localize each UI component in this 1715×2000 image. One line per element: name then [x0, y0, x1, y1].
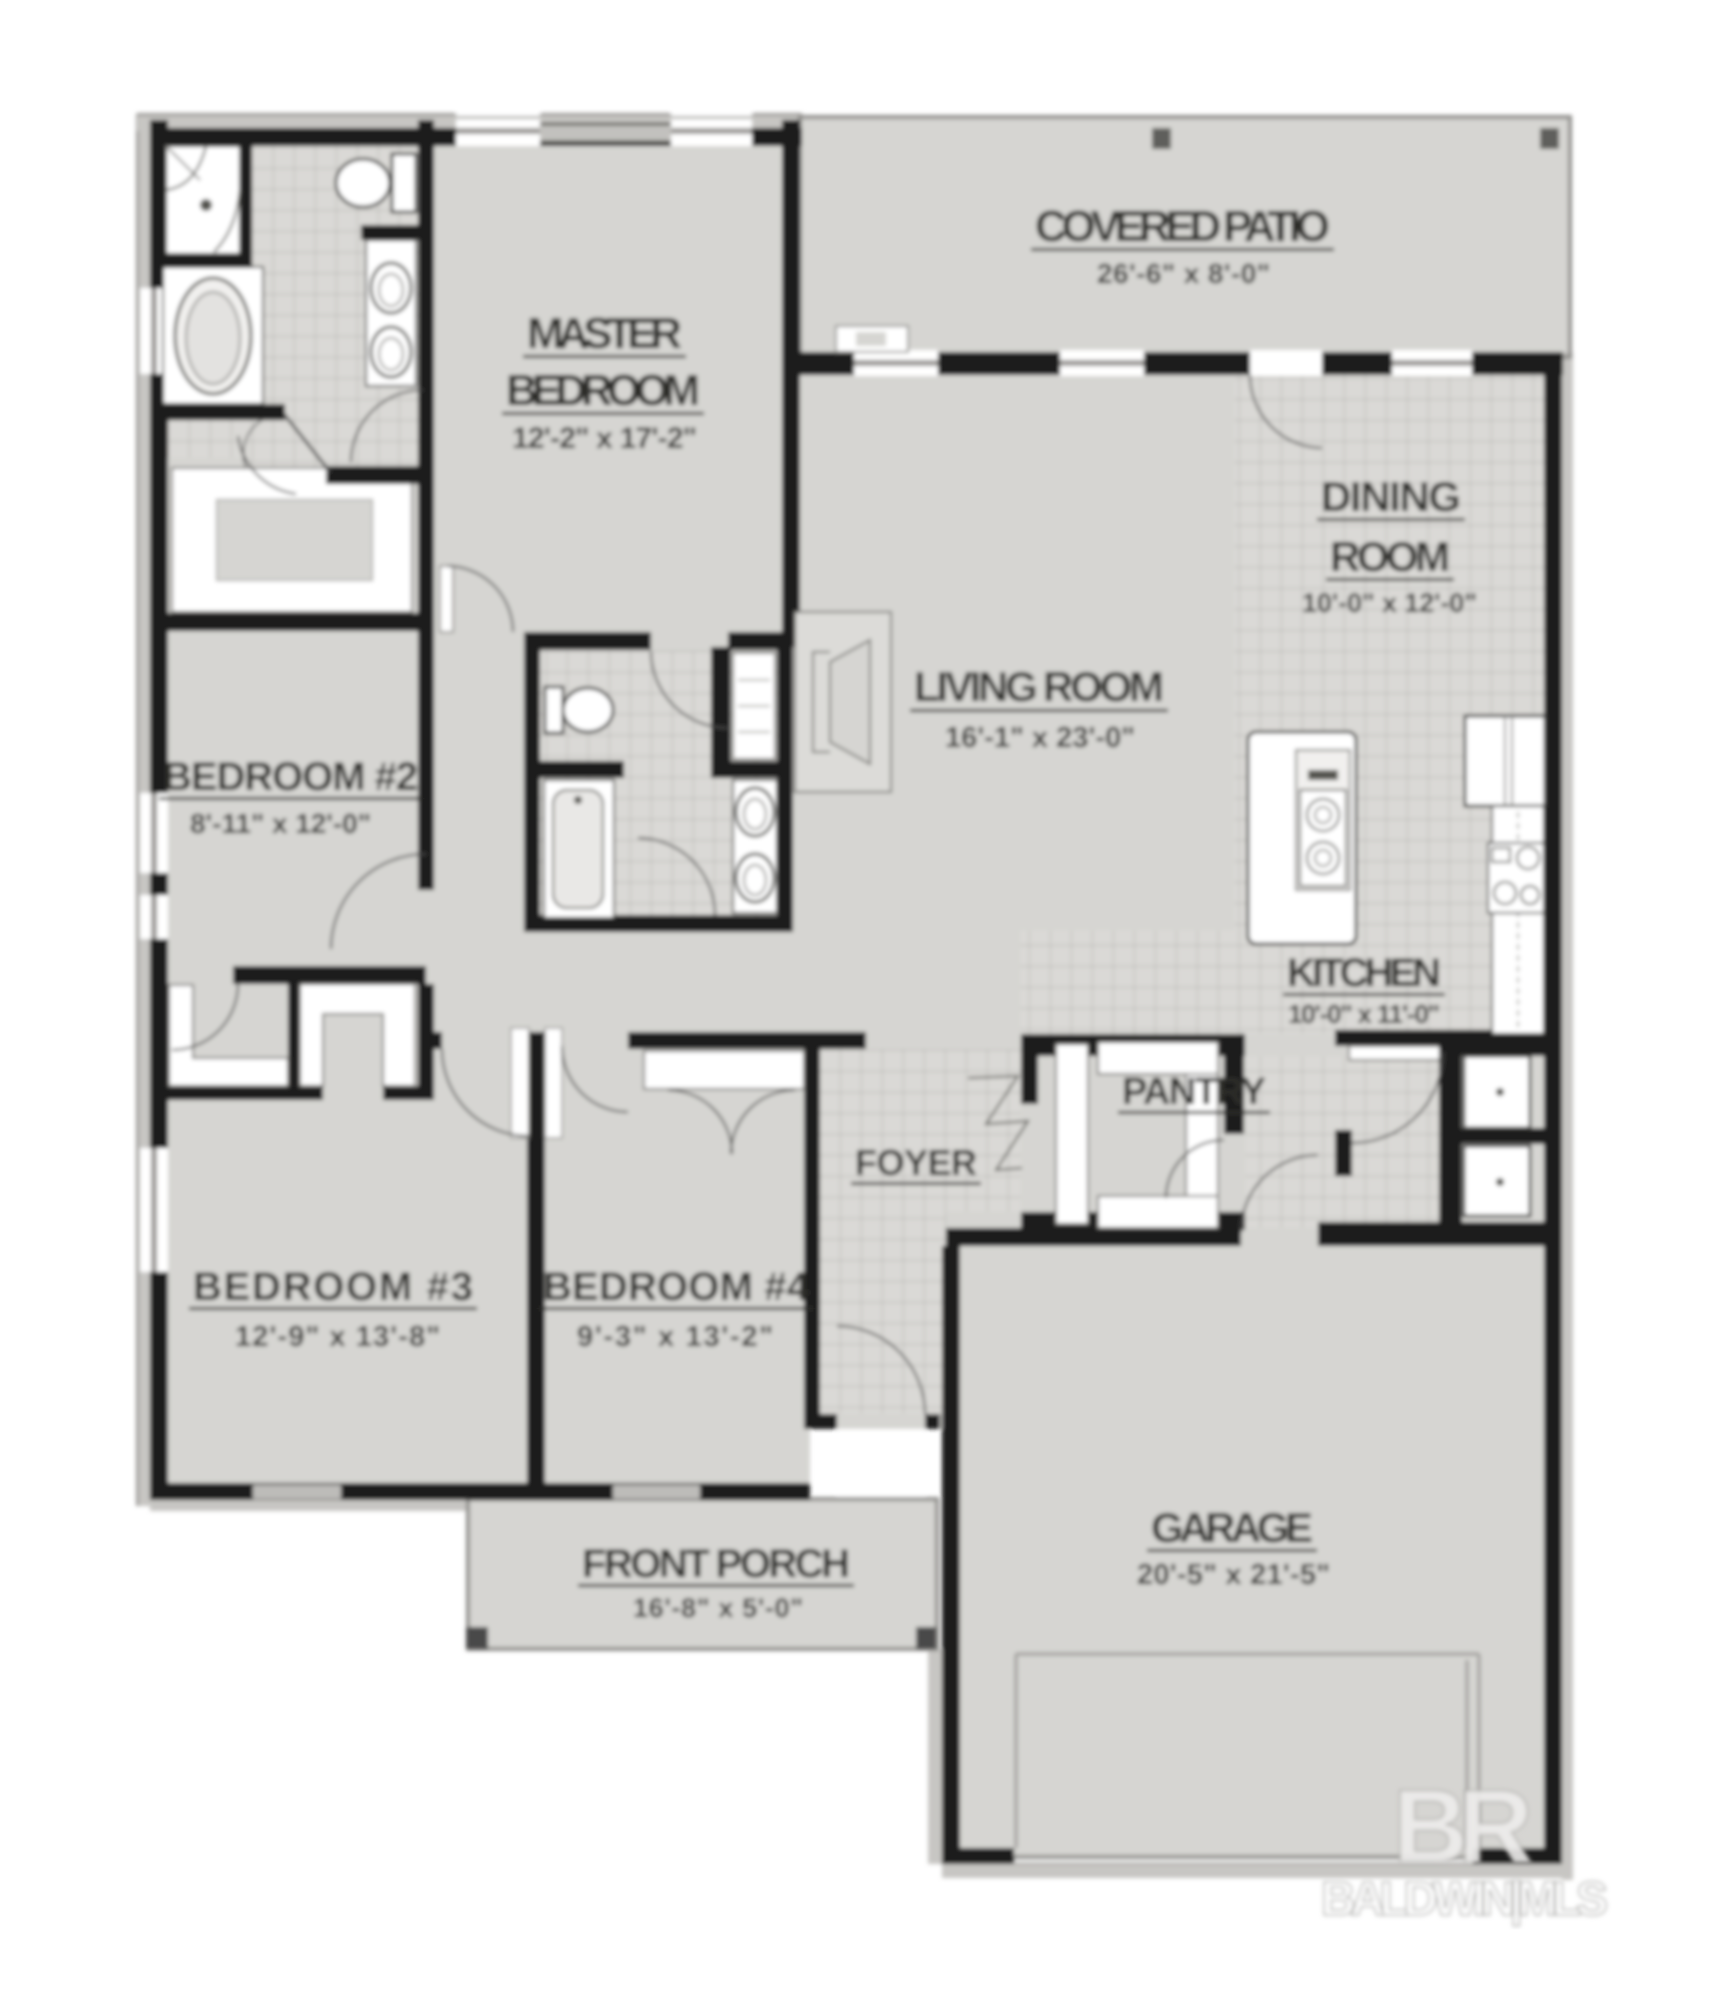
svg-text:26'-6" x 8'-0": 26'-6" x 8'-0"	[1097, 258, 1270, 289]
svg-text:8'-11" x 12'-0": 8'-11" x 12'-0"	[190, 808, 371, 839]
svg-text:BEDROOM #3: BEDROOM #3	[193, 1265, 473, 1309]
svg-text:GARAGE: GARAGE	[1151, 1504, 1313, 1551]
svg-text:FOYER: FOYER	[855, 1142, 977, 1183]
svg-text:12'-2" x 17'-2": 12'-2" x 17'-2"	[512, 422, 697, 455]
svg-text:10'-0" x 12'-0": 10'-0" x 12'-0"	[1302, 588, 1477, 618]
svg-text:MASTER: MASTER	[527, 309, 682, 358]
svg-text:PANTRY: PANTRY	[1122, 1071, 1266, 1113]
svg-text:BEDROOM #2: BEDROOM #2	[163, 755, 418, 799]
svg-text:10'-0" x 11'-0": 10'-0" x 11'-0"	[1288, 999, 1440, 1029]
svg-text:20'-5" x 21'-5": 20'-5" x 21'-5"	[1137, 1559, 1330, 1591]
svg-text:12'-9" x 13'-8": 12'-9" x 13'-8"	[235, 1321, 440, 1353]
svg-text:16'-8" x 5'-0": 16'-8" x 5'-0"	[633, 1593, 803, 1623]
svg-text:BEDROOM: BEDROOM	[506, 366, 700, 415]
svg-text:FRONT PORCH: FRONT PORCH	[582, 1542, 850, 1586]
svg-text:DINING: DINING	[1321, 473, 1461, 520]
svg-text:COVERED PATIO: COVERED PATIO	[1035, 202, 1330, 251]
svg-text:BEDROOM #4: BEDROOM #4	[543, 1265, 810, 1309]
svg-text:BR: BR	[1393, 1769, 1533, 1885]
svg-text:9'-3" x 13'-2": 9'-3" x 13'-2"	[577, 1321, 773, 1353]
svg-text:BALDWIN|MLS: BALDWIN|MLS	[1321, 1873, 1608, 1926]
svg-text:KITCHEN: KITCHEN	[1287, 951, 1441, 995]
svg-text:ROOM: ROOM	[1330, 533, 1450, 580]
svg-text:16'-1" x 23'-0": 16'-1" x 23'-0"	[945, 722, 1135, 754]
svg-text:LIVING ROOM: LIVING ROOM	[914, 663, 1164, 710]
